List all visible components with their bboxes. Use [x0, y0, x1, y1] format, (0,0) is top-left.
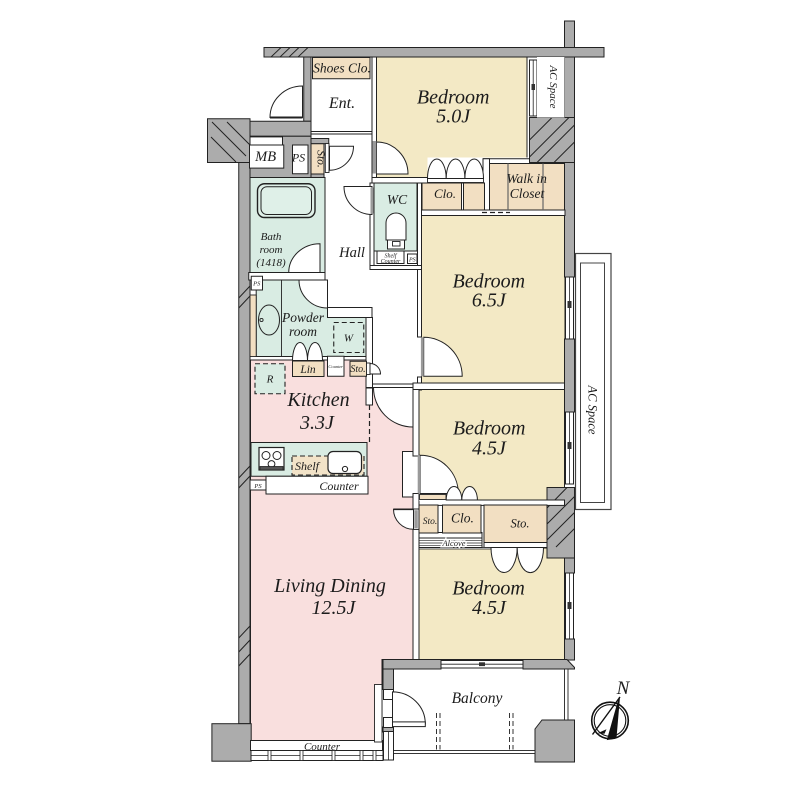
- svg-text:Counter: Counter: [319, 479, 359, 493]
- svg-text:4.5J: 4.5J: [472, 438, 507, 460]
- svg-text:Clo.: Clo.: [434, 186, 456, 201]
- svg-text:Balcony: Balcony: [452, 690, 503, 707]
- svg-text:Shelf: Shelf: [295, 459, 321, 473]
- svg-text:Powder: Powder: [281, 310, 325, 325]
- svg-text:Shoes Clo.: Shoes Clo.: [313, 61, 371, 76]
- svg-text:Sto.: Sto.: [510, 517, 529, 531]
- svg-text:Clo.: Clo.: [451, 511, 474, 526]
- svg-text:WC: WC: [387, 192, 408, 207]
- svg-text:Walk in: Walk in: [507, 171, 548, 186]
- svg-text:AC Space: AC Space: [547, 64, 559, 108]
- svg-text:Counter: Counter: [381, 259, 401, 265]
- svg-text:Lin: Lin: [299, 364, 316, 376]
- svg-text:6.5J: 6.5J: [472, 290, 507, 312]
- svg-text:AC Space: AC Space: [586, 385, 600, 435]
- svg-text:Counter: Counter: [304, 741, 341, 753]
- svg-text:room: room: [260, 244, 283, 256]
- svg-text:Bedroom: Bedroom: [453, 418, 526, 440]
- svg-text:4.5J: 4.5J: [472, 597, 507, 619]
- svg-text:(1418): (1418): [256, 257, 286, 269]
- svg-text:room: room: [289, 324, 317, 339]
- svg-text:PS: PS: [408, 258, 416, 264]
- svg-text:5.0J: 5.0J: [436, 106, 471, 128]
- svg-text:MB: MB: [254, 149, 276, 165]
- svg-text:Bath: Bath: [261, 231, 282, 243]
- svg-text:PS: PS: [252, 281, 261, 288]
- svg-text:N: N: [616, 678, 631, 699]
- svg-text:Living Dining: Living Dining: [273, 575, 386, 597]
- svg-text:PS: PS: [253, 483, 262, 490]
- svg-text:Alcove: Alcove: [441, 538, 465, 548]
- svg-text:Ent.: Ent.: [328, 95, 355, 112]
- svg-text:Sto.: Sto.: [315, 150, 327, 168]
- svg-text:12.5J: 12.5J: [312, 597, 357, 619]
- svg-text:PS: PS: [291, 151, 305, 165]
- svg-text:Closet: Closet: [510, 186, 546, 201]
- svg-text:W: W: [344, 333, 354, 345]
- svg-text:Sto.: Sto.: [350, 364, 365, 375]
- svg-text:Sto.: Sto.: [423, 517, 438, 527]
- svg-text:Kitchen: Kitchen: [286, 389, 349, 411]
- svg-text:Counter: Counter: [328, 364, 343, 369]
- svg-text:R: R: [266, 374, 274, 386]
- svg-text:3.3J: 3.3J: [299, 412, 335, 434]
- svg-text:Hall: Hall: [338, 245, 365, 261]
